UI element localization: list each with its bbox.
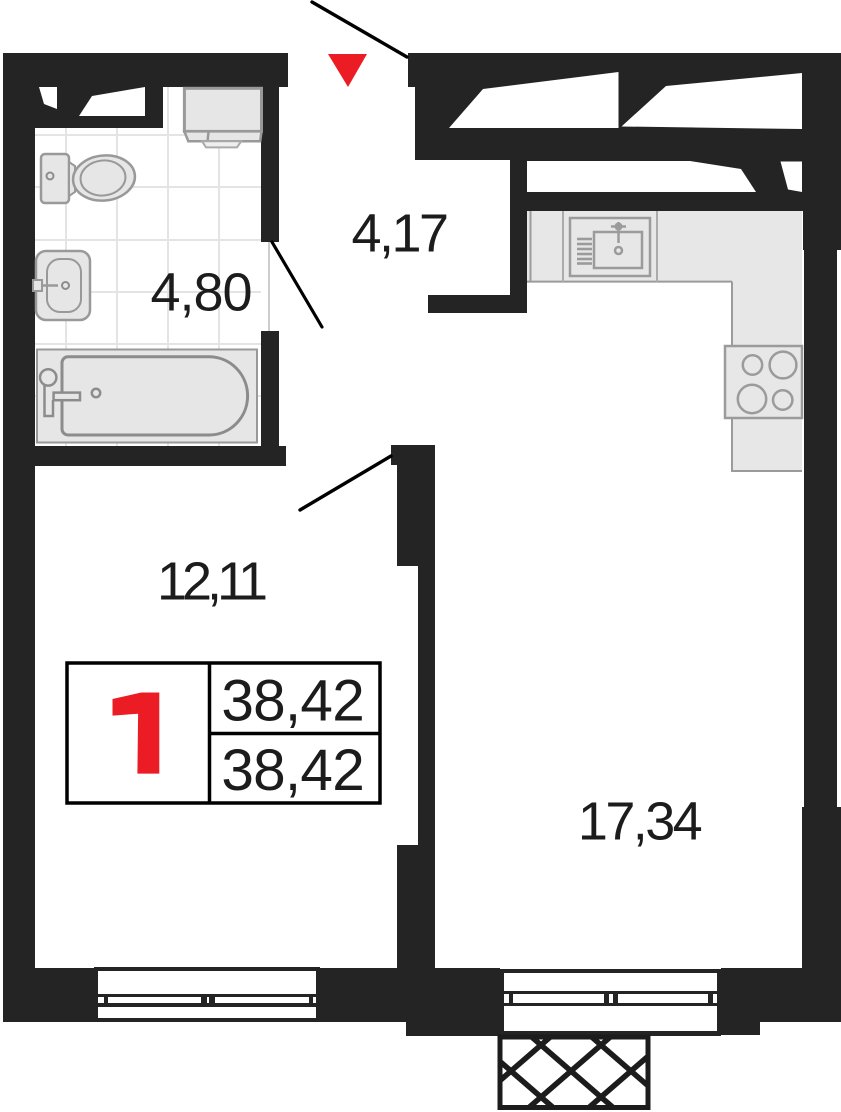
- svg-text:38,42: 38,42: [221, 738, 364, 803]
- svg-text:12,11: 12,11: [157, 552, 266, 612]
- svg-text:4,80: 4,80: [150, 263, 251, 323]
- svg-text:4,17: 4,17: [351, 204, 447, 264]
- svg-text:17,34: 17,34: [578, 791, 702, 851]
- svg-text:38,42: 38,42: [221, 669, 364, 734]
